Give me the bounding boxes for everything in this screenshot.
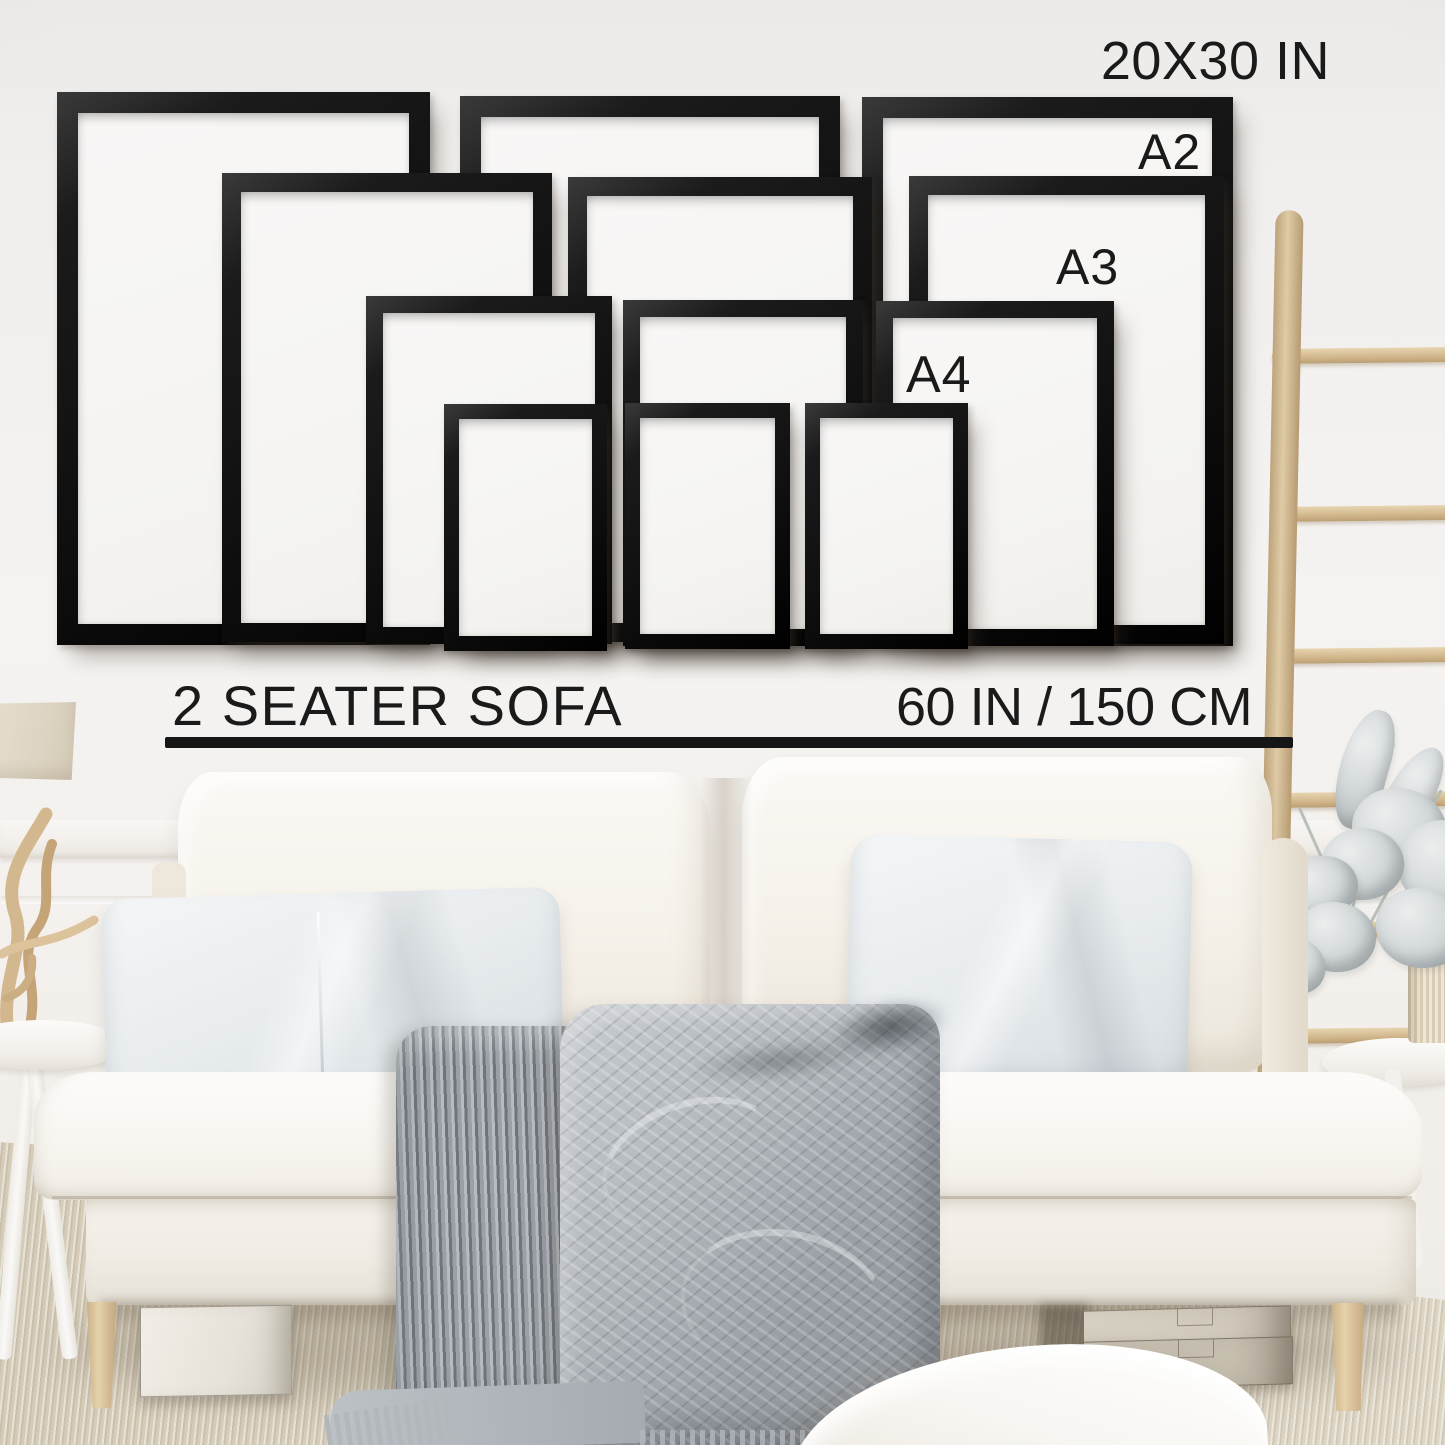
label-sofa-type: 2 SEATER SOFA: [172, 678, 623, 734]
driftwood-sculpture: [0, 788, 106, 1038]
label-a4: A4: [906, 349, 972, 401]
label-sofa-width: 60 IN / 150 CM: [896, 680, 1252, 734]
ladder-rung: [1272, 647, 1445, 664]
scale-underline: [165, 737, 1293, 748]
frame-mat: [820, 418, 953, 634]
label-a3: A3: [1056, 242, 1119, 292]
frame-a4-right: [805, 403, 968, 649]
ladder-rung: [1272, 505, 1445, 522]
frame-mat: [640, 418, 775, 634]
box-lid-seam: [1178, 1339, 1214, 1358]
frame-a4-center: [625, 403, 790, 649]
frame-mat: [459, 419, 592, 636]
product-size-guide-image: 20X30 IN A2 A3 A4 2 SEATER SOFA 60 IN / …: [0, 0, 1445, 1445]
label-frame-size: 20X30 IN: [1000, 34, 1330, 88]
table-lamp-shade: [0, 702, 76, 780]
frame-a4-left: [444, 404, 607, 651]
box-lid-seam: [1177, 1308, 1213, 1326]
storage-box-left: [140, 1305, 292, 1398]
label-a2: A2: [1138, 127, 1201, 177]
